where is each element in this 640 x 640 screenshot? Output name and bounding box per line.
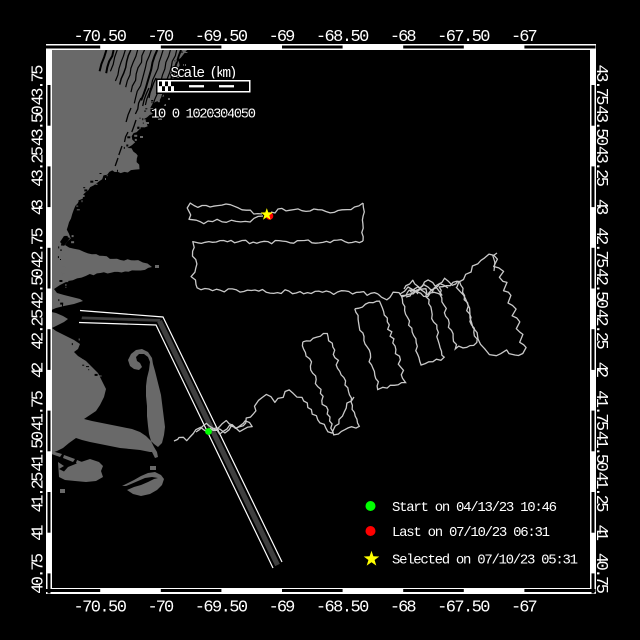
svg-text:43.75: 43.75 [591,65,610,106]
svg-text:-70: -70 [147,599,174,618]
svg-text:43.50: 43.50 [591,105,610,146]
svg-text:43.25: 43.25 [591,146,610,187]
svg-text:-67: -67 [511,599,538,618]
svg-text:41.75: 41.75 [591,390,610,431]
svg-text:41.25: 41.25 [591,472,610,513]
svg-text:Start on 04/13/23 10:46: Start on 04/13/23 10:46 [392,500,557,516]
svg-text:Selected on 07/10/23 05:31: Selected on 07/10/23 05:31 [392,553,578,569]
svg-text:42.50: 42.50 [591,268,610,309]
svg-text:-69: -69 [269,28,296,47]
svg-text:-70: -70 [147,28,174,47]
svg-text:42.25: 42.25 [30,309,49,350]
svg-text:43.50: 43.50 [30,105,49,146]
svg-text:41: 41 [591,525,610,541]
svg-text:43.25: 43.25 [30,146,49,187]
svg-text:Last on 07/10/23 06:31: Last on 07/10/23 06:31 [392,525,550,541]
svg-text:41.75: 41.75 [30,390,49,431]
svg-text:42.25: 42.25 [591,309,610,350]
svg-text:42.50: 42.50 [30,268,49,309]
svg-text:-69.50: -69.50 [195,599,248,618]
svg-text:42.75: 42.75 [30,227,49,268]
svg-text:-67.50: -67.50 [437,28,490,47]
svg-text:43: 43 [30,199,49,215]
svg-text:43: 43 [591,199,610,215]
svg-text:-67: -67 [511,28,538,47]
svg-text:-69: -69 [269,599,296,618]
svg-text:41.50: 41.50 [591,431,610,472]
svg-text:40.75: 40.75 [30,553,49,594]
svg-text:-68.50: -68.50 [316,28,369,47]
svg-text:42: 42 [591,362,610,378]
svg-text:10 0 1020304050: 10 0 1020304050 [151,107,256,123]
svg-text:-68: -68 [390,28,417,47]
svg-text:43.75: 43.75 [30,65,49,106]
svg-text:42.75: 42.75 [591,227,610,268]
svg-text:-67.50: -67.50 [437,599,490,618]
svg-text:41: 41 [30,525,49,541]
svg-text:-70.50: -70.50 [73,28,126,47]
svg-text:-68.50: -68.50 [316,599,369,618]
svg-text:42: 42 [30,362,49,378]
svg-text:-68: -68 [390,599,417,618]
svg-text:41.50: 41.50 [30,431,49,472]
svg-text:40.75: 40.75 [591,553,610,594]
svg-text:-69.50: -69.50 [195,28,248,47]
svg-text:-70.50: -70.50 [73,599,126,618]
svg-text:41.25: 41.25 [30,472,49,513]
